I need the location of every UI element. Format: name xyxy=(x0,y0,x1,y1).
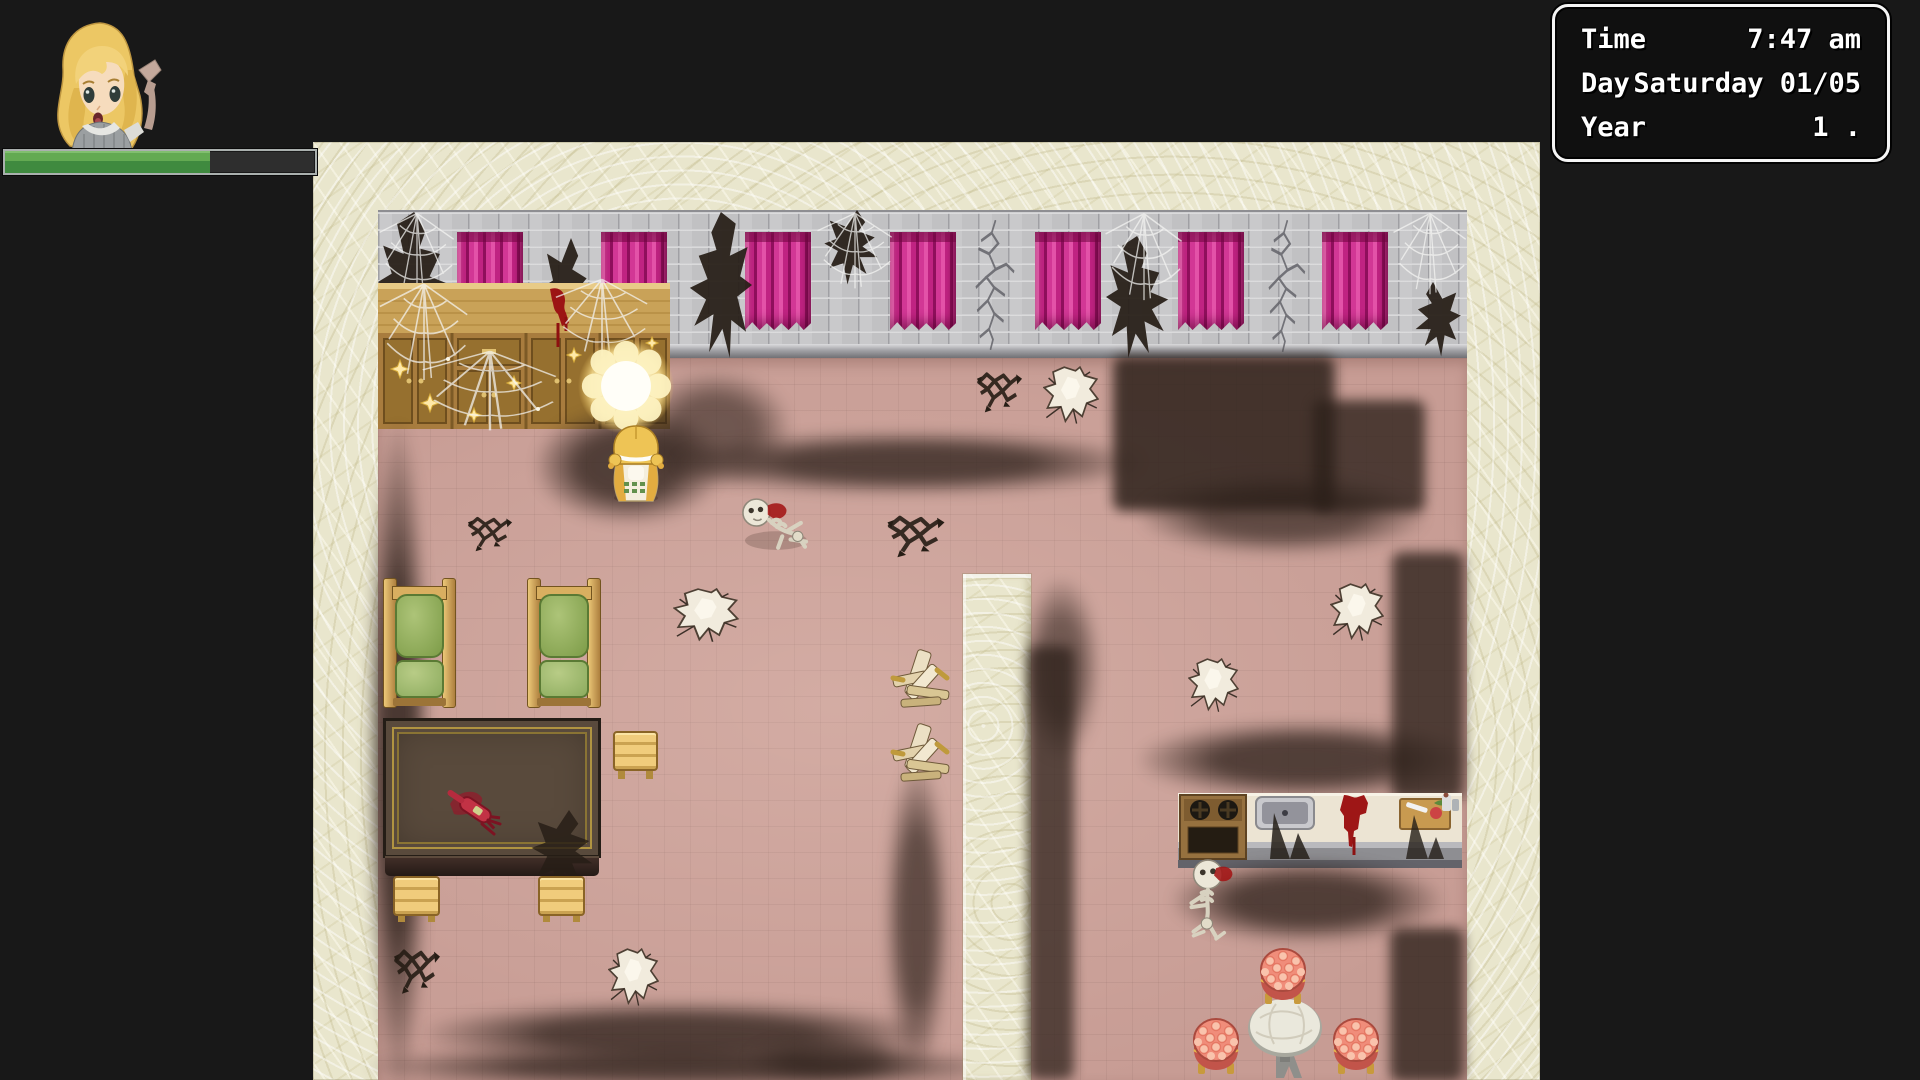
player-portrait xyxy=(36,18,168,152)
floor-soot-10 xyxy=(1392,552,1464,800)
light-orb[interactable] xyxy=(578,338,674,434)
curtain-5 xyxy=(1035,232,1101,330)
broken-chair-2 xyxy=(886,722,956,792)
day-value: Saturday 01/05 xyxy=(1633,68,1861,99)
floor-soot-13 xyxy=(748,1035,918,1080)
floor-hole-5 xyxy=(608,948,659,1008)
floor-crack-3 xyxy=(466,508,514,556)
skeleton-2[interactable] xyxy=(1173,858,1253,946)
green-chair-2[interactable] xyxy=(527,578,601,706)
dead-creature[interactable] xyxy=(441,780,507,842)
floor-soot-15 xyxy=(1390,928,1464,1080)
skeleton-1[interactable] xyxy=(738,495,812,555)
time-label: Time xyxy=(1581,24,1646,55)
spider-web-4 xyxy=(1392,210,1468,296)
wood-stool-2[interactable] xyxy=(393,876,440,922)
room xyxy=(378,210,1467,1080)
floral-stool-1[interactable] xyxy=(1258,946,1308,1006)
broken-chair-1 xyxy=(886,648,956,718)
year-label: Year xyxy=(1581,112,1646,143)
wood-stool-3[interactable] xyxy=(538,876,585,922)
floor-hole-1 xyxy=(1043,366,1099,426)
curtain-6 xyxy=(1178,232,1244,330)
curtain-7 xyxy=(1322,232,1388,330)
green-chair-1[interactable] xyxy=(383,578,456,706)
floor-soot-4 xyxy=(676,432,1141,494)
hair-ribbon xyxy=(139,60,161,82)
sink xyxy=(1256,797,1314,829)
wall-crack-1 xyxy=(960,220,1026,350)
wall-crack-2 xyxy=(1254,220,1316,352)
floor-crack-1 xyxy=(975,362,1024,418)
stove xyxy=(1180,795,1246,859)
spider-web-3 xyxy=(1104,210,1184,302)
clock-row-day: Day Saturday 01/05 xyxy=(1581,68,1861,99)
floral-stool-3[interactable] xyxy=(1331,1016,1381,1076)
day-label: Day xyxy=(1581,68,1630,99)
hp-fill xyxy=(5,151,210,173)
curtain-3 xyxy=(745,232,811,330)
year-value: 1 . xyxy=(1812,112,1861,143)
time-value: 7:47 am xyxy=(1747,24,1861,55)
wood-stool-1[interactable] xyxy=(613,731,658,779)
clock-window: Time 7:47 am Day Saturday 01/05 Year 1 . xyxy=(1552,4,1890,162)
object-layer xyxy=(378,210,1467,1080)
floor-crack-2 xyxy=(885,505,947,563)
floor-soot-7 xyxy=(1140,476,1425,554)
interior-pillar xyxy=(963,574,1031,1080)
clock-row-year: Year 1 . xyxy=(1581,112,1861,143)
game-screen: Time 7:47 am Day Saturday 01/05 Year 1 . xyxy=(0,0,1920,1080)
wall-hole-3 xyxy=(678,212,752,358)
curtain-4 xyxy=(890,232,956,330)
floor-hole-3 xyxy=(1330,583,1384,643)
map-viewport xyxy=(313,142,1540,1080)
player-character[interactable] xyxy=(604,424,668,502)
round-table[interactable] xyxy=(1246,998,1324,1080)
floor-hole-2 xyxy=(673,588,739,644)
floor-hole-4 xyxy=(1188,658,1239,714)
spider-web-2 xyxy=(816,210,894,290)
clock-row-time: Time 7:47 am xyxy=(1581,24,1861,55)
floor-crack-4 xyxy=(392,938,442,1000)
hp-bar xyxy=(3,149,317,175)
pillar-shadow-fuzz xyxy=(1023,578,1099,758)
floral-stool-2[interactable] xyxy=(1191,1016,1241,1076)
kitchen-counter[interactable] xyxy=(1178,793,1462,868)
